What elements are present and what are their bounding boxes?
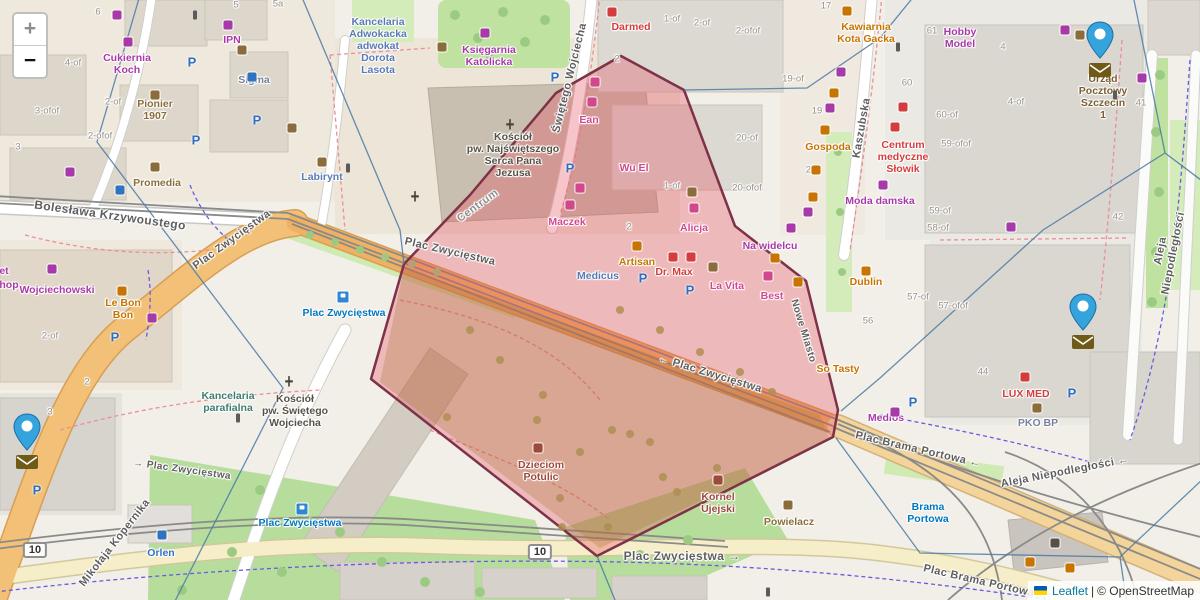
poi-icon xyxy=(891,123,900,132)
poi-icon xyxy=(899,103,908,112)
parking-icon: P xyxy=(686,283,695,298)
envelope-icon xyxy=(1089,63,1111,77)
tram-stop-icon xyxy=(296,503,309,516)
attribution-bar: Leaflet | © OpenStreetMap xyxy=(1028,581,1200,600)
poi-icon xyxy=(787,224,796,233)
zoom-out-button[interactable]: − xyxy=(14,46,46,77)
route-badge: 10 xyxy=(23,542,47,558)
base-map xyxy=(0,0,1200,600)
poi-icon xyxy=(812,166,821,175)
church-cross-icon: + xyxy=(285,371,294,394)
poi-icon xyxy=(224,21,233,30)
map-pin-icon xyxy=(14,414,40,450)
envelope-icon xyxy=(16,455,38,469)
route-badge: 10 xyxy=(528,544,552,560)
poi-icon xyxy=(1051,539,1060,548)
poi-icon xyxy=(837,68,846,77)
parking-icon: P xyxy=(188,55,197,70)
attribution-separator: | xyxy=(1091,584,1094,598)
parking-icon: P xyxy=(111,330,120,345)
poi-icon xyxy=(118,287,127,296)
poi-icon xyxy=(318,158,327,167)
traffic-signal-icon xyxy=(766,588,770,597)
parking-icon: P xyxy=(639,271,648,286)
poi-icon xyxy=(576,184,585,193)
poi-icon xyxy=(809,193,818,202)
poi-icon xyxy=(1061,26,1070,35)
poi-icon xyxy=(687,253,696,262)
poi-icon xyxy=(794,278,803,287)
poi-icon xyxy=(633,242,642,251)
poi-icon xyxy=(116,186,125,195)
tram-stop-icon xyxy=(337,291,350,304)
poi-icon xyxy=(148,314,157,323)
poi-icon xyxy=(566,201,575,210)
post-office-marker-2[interactable] xyxy=(1068,292,1098,355)
poi-icon xyxy=(534,444,543,453)
poi-icon xyxy=(879,181,888,190)
poi-icon xyxy=(690,204,699,213)
poi-icon xyxy=(113,11,122,20)
poi-icon xyxy=(48,265,57,274)
post-office-marker-1[interactable] xyxy=(1085,20,1115,83)
poi-icon xyxy=(608,8,617,17)
envelope-icon xyxy=(1072,335,1094,349)
poi-icon xyxy=(764,272,773,281)
parking-icon: P xyxy=(33,483,42,498)
poi-icon xyxy=(124,38,133,47)
parking-icon: P xyxy=(551,70,560,85)
ukraine-flag-icon xyxy=(1034,586,1047,595)
poi-icon xyxy=(1033,404,1042,413)
traffic-signal-icon xyxy=(1113,91,1117,100)
map-pin-icon xyxy=(1087,22,1113,58)
poi-icon xyxy=(826,104,835,113)
post-office-marker-3[interactable] xyxy=(12,412,42,475)
poi-icon xyxy=(1007,223,1016,232)
poi-icon xyxy=(1026,558,1035,567)
poi-icon xyxy=(669,253,678,262)
zoom-control: + − xyxy=(12,12,48,79)
poi-icon xyxy=(238,46,247,55)
poi-icon xyxy=(709,263,718,272)
parking-icon: P xyxy=(192,133,201,148)
poi-icon xyxy=(688,188,697,197)
traffic-signal-icon xyxy=(236,414,240,423)
parking-icon: P xyxy=(253,113,262,128)
poi-icon xyxy=(1066,564,1075,573)
traffic-signal-icon xyxy=(193,11,197,20)
poi-icon xyxy=(771,254,780,263)
poi-icon xyxy=(151,91,160,100)
poi-icon xyxy=(288,124,297,133)
map-canvas[interactable]: Bolesława KrzywoustegoPlac ZwycięstwaPla… xyxy=(0,0,1200,600)
leaflet-link[interactable]: Leaflet xyxy=(1052,584,1088,598)
openstreetmap-link[interactable]: © OpenStreetMap xyxy=(1097,584,1194,598)
poi-icon xyxy=(481,29,490,38)
poi-icon xyxy=(591,78,600,87)
poi-icon xyxy=(158,531,167,540)
traffic-signal-icon xyxy=(346,164,350,173)
poi-icon xyxy=(784,501,793,510)
map-pin-icon xyxy=(1070,294,1096,330)
poi-icon xyxy=(714,476,723,485)
traffic-signal-icon xyxy=(896,43,900,52)
parking-icon: P xyxy=(1068,386,1077,401)
poi-icon xyxy=(588,98,597,107)
poi-icon xyxy=(843,7,852,16)
parking-icon: P xyxy=(566,161,575,176)
poi-icon xyxy=(248,73,257,82)
poi-icon xyxy=(1138,74,1147,83)
poi-icon xyxy=(1021,373,1030,382)
poi-icon xyxy=(862,267,871,276)
poi-icon xyxy=(438,43,447,52)
poi-icon xyxy=(891,408,900,417)
poi-icon xyxy=(821,126,830,135)
church-cross-icon: + xyxy=(506,114,515,137)
parking-icon: P xyxy=(909,395,918,410)
poi-icon xyxy=(830,89,839,98)
church-cross-icon: + xyxy=(411,186,420,209)
poi-icon xyxy=(151,163,160,172)
poi-icon xyxy=(1076,31,1085,40)
zoom-in-button[interactable]: + xyxy=(14,14,46,46)
poi-icon xyxy=(66,168,75,177)
poi-icon xyxy=(804,208,813,217)
